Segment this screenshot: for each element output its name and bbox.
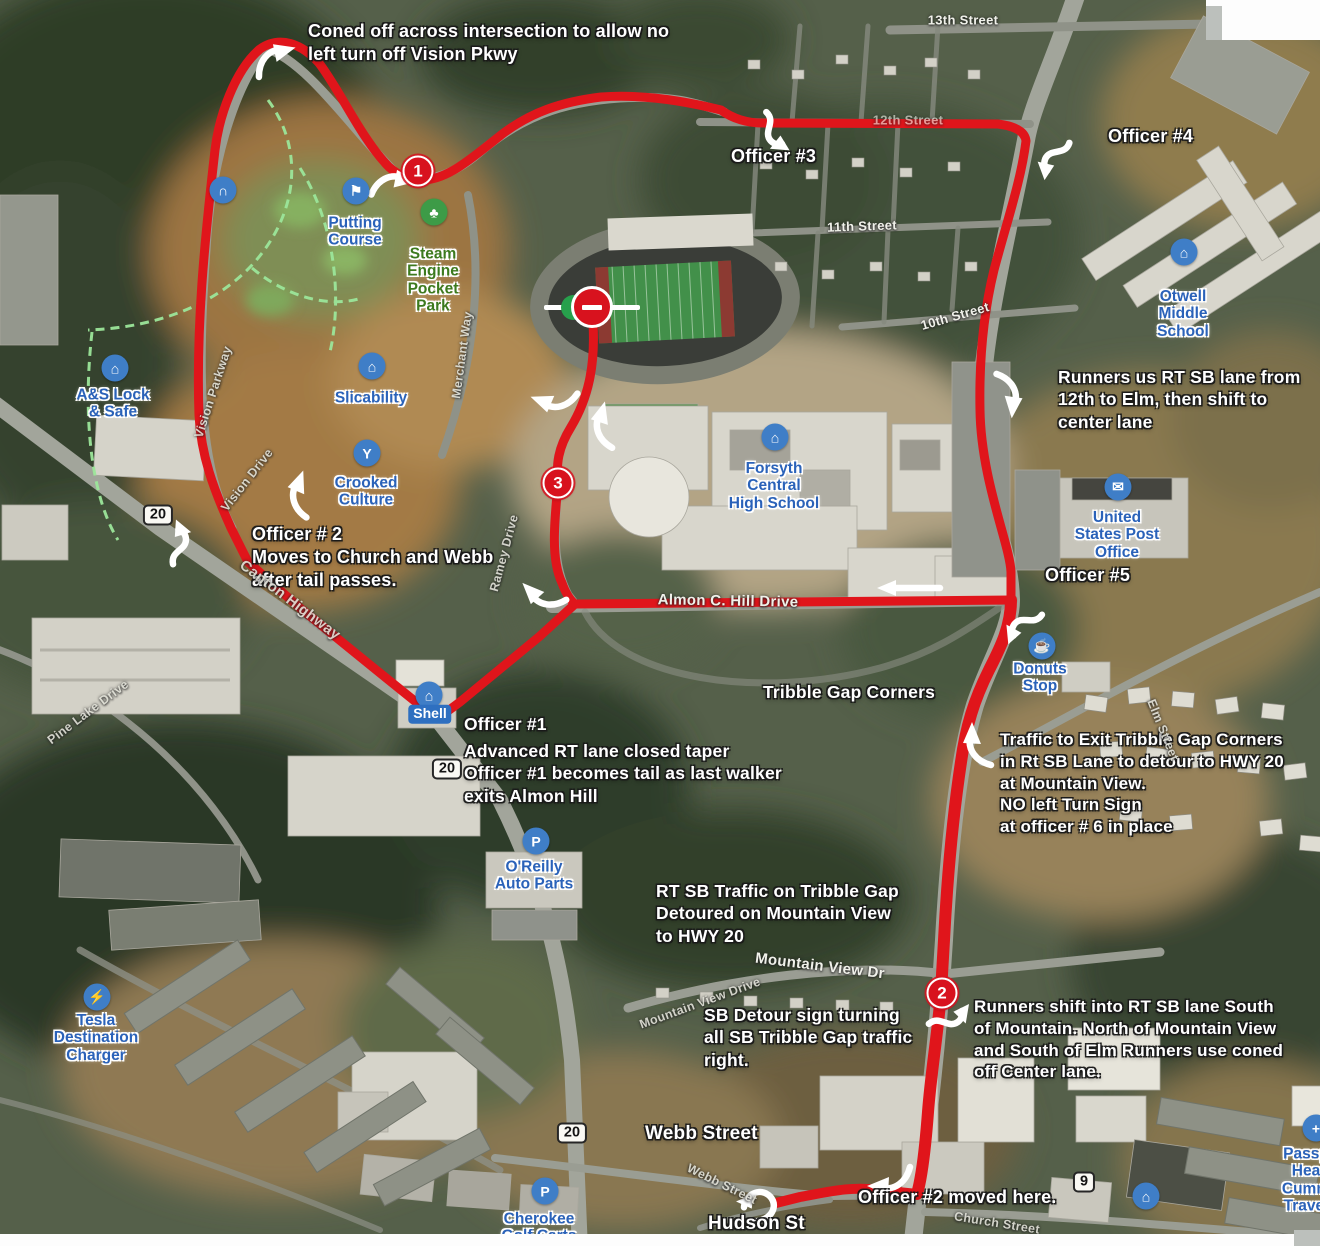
street-label: Webb Street <box>685 1161 759 1207</box>
poi-label: Putting Course <box>328 215 381 250</box>
parking-icon: P <box>532 1178 559 1205</box>
basket-icon: ⌂ <box>102 355 129 382</box>
poi-label: Forsyth Central High School <box>729 460 819 512</box>
poi-label: Slicability <box>335 389 407 406</box>
street-label: Pine Lake Drive <box>45 677 131 747</box>
map-annotation: Officer # 2 Moves to Church and Webb aft… <box>252 523 493 592</box>
health-icon: + <box>1303 1115 1320 1142</box>
map-annotation: Runners us RT SB lane from 12th to Elm, … <box>1058 366 1300 433</box>
poi-label: O'Reilly Auto Parts <box>495 859 573 894</box>
map-annotation: Officer #4 <box>1108 125 1193 148</box>
highway-shield-20: 20 <box>143 505 173 526</box>
golf-flag-icon: ⚑ <box>343 178 370 205</box>
street-label: Vision Parkway <box>192 344 235 439</box>
map-annotation: Tribble Gap Corners <box>763 681 935 703</box>
map-annotation: Runners shift into RT SB lane South of M… <box>974 996 1283 1083</box>
poi-label: A&S Lock & Safe <box>76 387 149 422</box>
street-label: 10th Street <box>919 299 991 333</box>
street-label: 11th Street <box>827 217 897 234</box>
basket-icon: ⌂ <box>1133 1183 1160 1210</box>
cocktail-icon: Y <box>354 440 381 467</box>
parking-icon: P <box>523 828 550 855</box>
poi-label: Shell <box>408 705 451 724</box>
start-no-entry-icon <box>571 286 613 328</box>
poi-label: Donuts Stop <box>1013 661 1066 696</box>
top-right-chip <box>1206 6 1222 40</box>
route-marker-1: 1 <box>403 156 434 187</box>
map-annotation: Coned off across intersection to allow n… <box>308 20 669 66</box>
street-label: Vision Drive <box>218 446 276 514</box>
mail-icon: ✉ <box>1105 474 1132 501</box>
map-annotation: SB Detour sign turning all SB Tribble Ga… <box>704 1004 912 1071</box>
race-course-map: Coned off across intersection to allow n… <box>0 0 1320 1246</box>
map-annotation: Officer #3 <box>731 145 816 168</box>
coffee-icon: ☕ <box>1029 633 1056 660</box>
map-annotation: Webb Street <box>645 1122 758 1146</box>
street-label: 12th Street <box>873 113 944 128</box>
route-marker-2: 2 <box>927 978 958 1009</box>
route-marker-3: 3 <box>543 468 574 499</box>
arch-icon: ∩ <box>210 177 237 204</box>
bottom-margin <box>0 1234 1320 1246</box>
street-label: Almon C. Hill Drive <box>657 591 798 610</box>
street-label: Merchant Way <box>449 311 475 400</box>
ev-charger-icon: ⚡ <box>84 984 111 1011</box>
map-annotation: RT SB Traffic on Tribble Gap Detoured on… <box>656 880 899 947</box>
map-annotation: Hudson St <box>708 1212 805 1236</box>
tree-icon: ♣ <box>421 199 448 226</box>
poi-label: Crooked Culture <box>335 475 398 510</box>
map-annotation: Officer #1 <box>464 713 547 735</box>
highway-shield-20: 20 <box>432 759 462 780</box>
school-icon: ⌂ <box>762 424 789 451</box>
highway-shield-9: 9 <box>1073 1172 1095 1193</box>
poi-label: Tesla Destination Charger <box>54 1012 138 1064</box>
poi-label: United States Post Office <box>1075 509 1159 561</box>
street-label: Church Street <box>953 1209 1041 1236</box>
poi-label: Steam Engine Pocket Park <box>407 245 459 314</box>
map-annotation: Traffic to Exit Tribble Gap Corners in R… <box>1000 729 1284 838</box>
bottom-right-chip <box>1294 1230 1320 1246</box>
poi-label: Passp Hea Cumm Travel <box>1282 1145 1320 1214</box>
poi-label: Otwell Middle School <box>1157 288 1209 340</box>
highway-shield-20: 20 <box>557 1123 587 1144</box>
map-annotation: Officer #5 <box>1045 564 1130 587</box>
map-annotation: Officer #2 moved here. <box>858 1186 1056 1209</box>
map-annotation: Advanced RT lane closed taper Officer #1… <box>464 740 782 807</box>
store-icon: ⌂ <box>359 353 386 380</box>
overlay-labels: Coned off across intersection to allow n… <box>0 0 1320 1246</box>
street-label: 13th Street <box>928 13 999 28</box>
street-label: Mountain View Dr <box>754 950 885 983</box>
school-icon: ⌂ <box>1171 239 1198 266</box>
top-right-margin <box>1206 0 1320 40</box>
